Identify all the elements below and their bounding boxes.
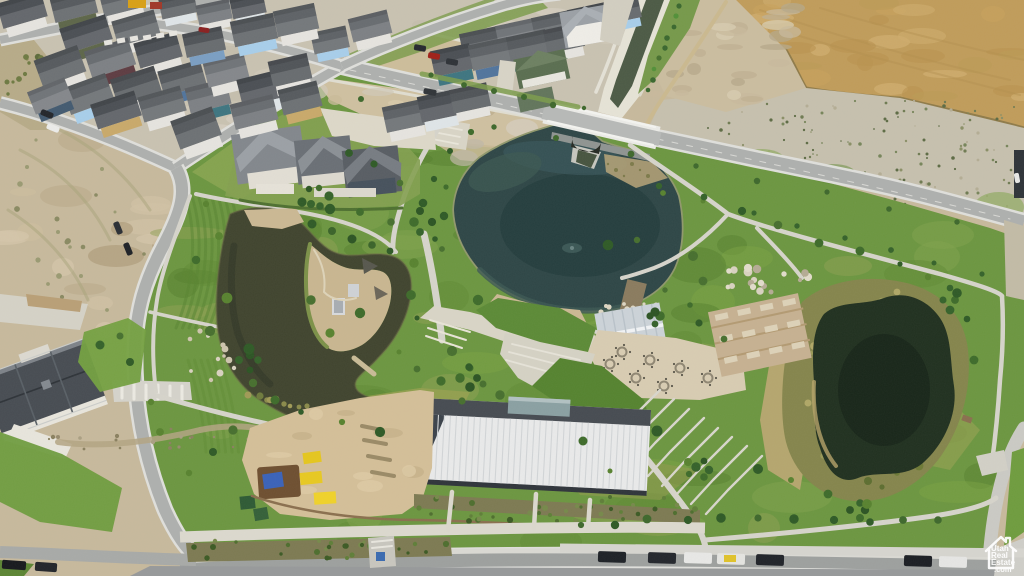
- svg-text:.com: .com: [994, 565, 1012, 574]
